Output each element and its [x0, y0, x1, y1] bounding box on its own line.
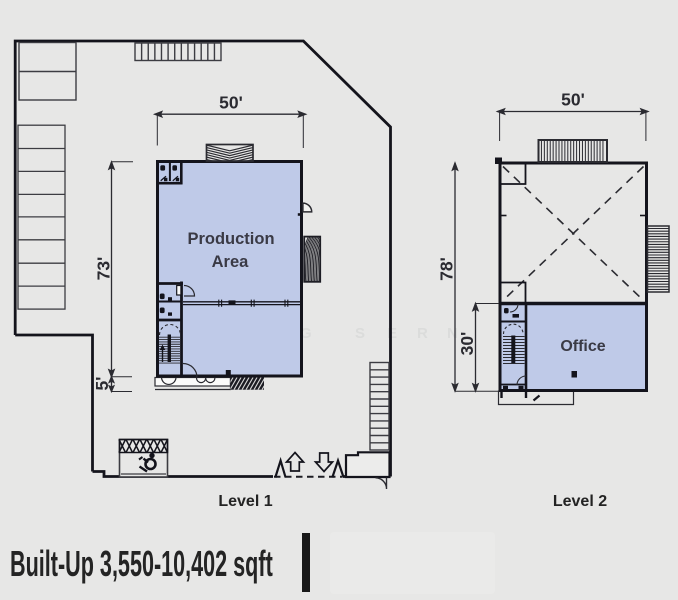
svg-text:Level 2: Level 2 — [553, 493, 607, 510]
svg-text:S: S — [355, 325, 365, 342]
svg-text:R: R — [417, 325, 428, 342]
svg-text:5': 5' — [92, 377, 112, 391]
svg-text:Area: Area — [212, 253, 250, 271]
svg-text:Built-Up 3,550-10,402 sqft: Built-Up 3,550-10,402 sqft — [10, 544, 273, 584]
svg-text:30': 30' — [457, 332, 477, 356]
svg-text:50': 50' — [219, 93, 243, 113]
svg-text:Office: Office — [560, 338, 605, 355]
svg-text:Level 1: Level 1 — [218, 493, 272, 510]
svg-text:Production: Production — [187, 230, 274, 248]
svg-text:E: E — [387, 325, 397, 342]
svg-text:73': 73' — [94, 257, 114, 281]
svg-text:78': 78' — [437, 257, 457, 281]
svg-text:50': 50' — [561, 90, 585, 110]
